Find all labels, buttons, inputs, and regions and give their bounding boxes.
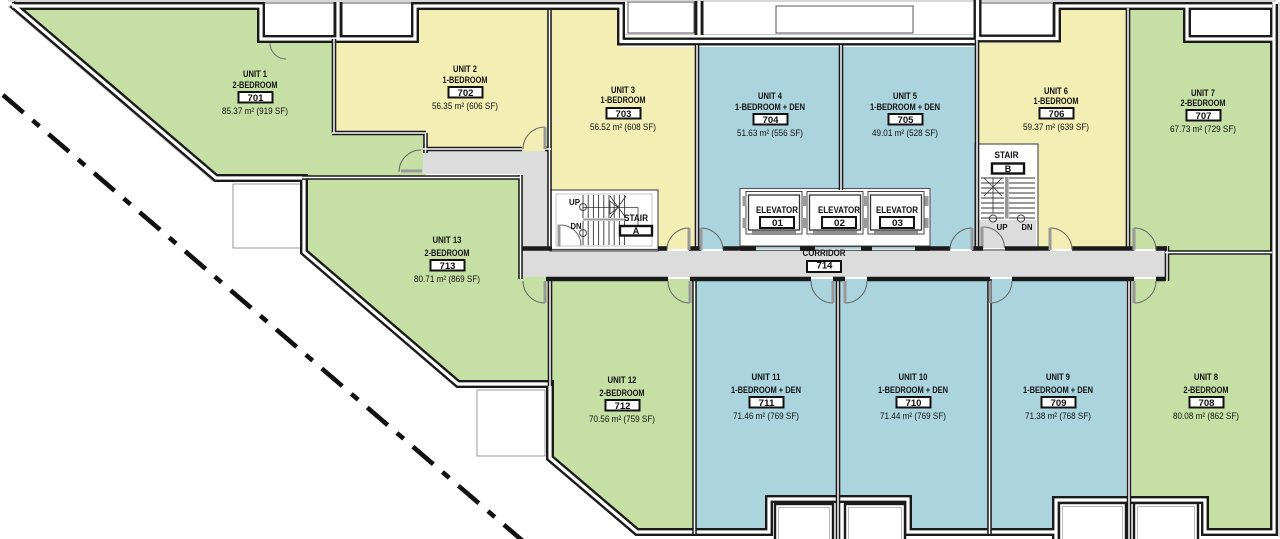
svg-text:STAIR: STAIR: [995, 150, 1019, 161]
svg-text:703: 703: [616, 109, 632, 119]
svg-text:59.37 m² (639 SF): 59.37 m² (639 SF): [1023, 122, 1089, 133]
svg-text:UP: UP: [997, 223, 1009, 232]
svg-text:UNIT 1: UNIT 1: [243, 69, 268, 80]
svg-text:DN: DN: [1022, 223, 1033, 232]
svg-text:CORRIDOR: CORRIDOR: [803, 248, 846, 259]
svg-text:80.08 m² (862 SF): 80.08 m² (862 SF): [1173, 411, 1239, 422]
svg-text:2-BEDROOM: 2-BEDROOM: [233, 80, 278, 91]
svg-text:710: 710: [906, 398, 922, 408]
svg-text:704: 704: [763, 115, 779, 125]
svg-text:B: B: [1005, 164, 1012, 174]
svg-text:UNIT 13: UNIT 13: [433, 235, 462, 246]
svg-text:712: 712: [615, 401, 631, 411]
svg-text:2-BEDROOM: 2-BEDROOM: [600, 388, 645, 399]
svg-text:711: 711: [759, 398, 775, 408]
svg-text:714: 714: [817, 261, 833, 271]
svg-text:67.73 m² (729 SF): 67.73 m² (729 SF): [1170, 124, 1236, 135]
svg-text:1-BEDROOM + DEN: 1-BEDROOM + DEN: [870, 102, 940, 113]
svg-text:705: 705: [898, 115, 914, 125]
svg-text:701: 701: [248, 93, 264, 103]
svg-text:85.37 m² (919 SF): 85.37 m² (919 SF): [222, 106, 288, 117]
svg-text:UNIT 2: UNIT 2: [453, 64, 477, 75]
svg-text:UNIT 12: UNIT 12: [608, 375, 637, 386]
svg-text:UNIT 8: UNIT 8: [1194, 372, 1218, 383]
svg-text:UNIT 4: UNIT 4: [758, 91, 783, 102]
svg-text:56.35 m² (606 SF): 56.35 m² (606 SF): [432, 101, 498, 112]
svg-text:71.44 m² (769 SF): 71.44 m² (769 SF): [880, 411, 946, 422]
svg-text:702: 702: [458, 88, 474, 98]
svg-text:01: 01: [772, 218, 783, 228]
svg-text:2-BEDROOM: 2-BEDROOM: [1181, 98, 1226, 109]
svg-text:UNIT 5: UNIT 5: [893, 91, 918, 102]
svg-text:STAIR: STAIR: [624, 213, 648, 224]
svg-text:70.56 m² (759 SF): 70.56 m² (759 SF): [589, 414, 655, 425]
svg-text:1-BEDROOM + DEN: 1-BEDROOM + DEN: [1023, 385, 1093, 396]
svg-text:1-BEDROOM: 1-BEDROOM: [443, 75, 488, 86]
svg-text:1-BEDROOM + DEN: 1-BEDROOM + DEN: [735, 102, 805, 113]
svg-text:03: 03: [892, 218, 903, 228]
svg-text:1-BEDROOM + DEN: 1-BEDROOM + DEN: [878, 385, 948, 396]
svg-text:71.46 m² (769 SF): 71.46 m² (769 SF): [733, 411, 799, 422]
svg-text:1-BEDROOM: 1-BEDROOM: [1034, 96, 1079, 107]
svg-text:80.71 m² (869 SF): 80.71 m² (869 SF): [414, 274, 480, 285]
svg-text:UNIT 11: UNIT 11: [752, 372, 782, 383]
svg-text:02: 02: [834, 218, 845, 228]
svg-text:49.01 m² (528 SF): 49.01 m² (528 SF): [872, 128, 938, 139]
svg-text:707: 707: [1196, 111, 1212, 121]
svg-text:ELEVATOR: ELEVATOR: [876, 205, 918, 216]
svg-text:UNIT 10: UNIT 10: [899, 372, 928, 383]
svg-text:706: 706: [1049, 109, 1065, 119]
svg-text:UNIT 9: UNIT 9: [1046, 372, 1070, 383]
svg-text:51.63 m² (556 SF): 51.63 m² (556 SF): [737, 128, 803, 139]
svg-text:ELEVATOR: ELEVATOR: [818, 205, 860, 216]
svg-text:1-BEDROOM: 1-BEDROOM: [601, 95, 646, 106]
svg-text:71.38 m² (768 SF): 71.38 m² (768 SF): [1025, 411, 1091, 422]
svg-text:713: 713: [440, 261, 456, 271]
svg-text:ELEVATOR: ELEVATOR: [756, 205, 798, 216]
svg-text:2-BEDROOM: 2-BEDROOM: [425, 248, 470, 259]
svg-text:56.52 m² (608 SF): 56.52 m² (608 SF): [590, 122, 656, 133]
svg-text:UP: UP: [569, 198, 581, 207]
svg-text:709: 709: [1051, 398, 1067, 408]
svg-text:1-BEDROOM + DEN: 1-BEDROOM + DEN: [731, 385, 801, 396]
svg-text:A: A: [633, 226, 640, 236]
svg-text:DN: DN: [571, 222, 582, 231]
svg-text:2-BEDROOM: 2-BEDROOM: [1184, 385, 1229, 396]
svg-text:708: 708: [1199, 398, 1215, 408]
